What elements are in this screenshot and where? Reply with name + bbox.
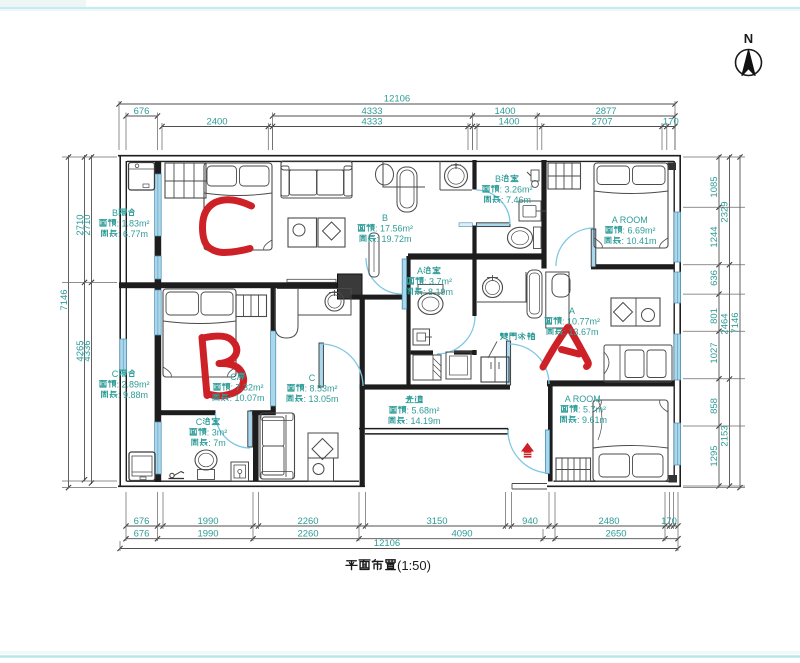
svg-text:: 8.53m²: : 8.53m²	[304, 384, 337, 394]
svg-text:858: 858	[709, 398, 720, 414]
svg-text:676: 676	[134, 516, 150, 527]
svg-text:B: B	[112, 208, 118, 218]
svg-text:: 17.56m²: : 17.56m²	[375, 224, 413, 234]
svg-text:2710: 2710	[82, 214, 93, 235]
svg-text:: 5.7m²: : 5.7m²	[578, 405, 606, 415]
svg-text:1085: 1085	[709, 176, 720, 197]
svg-text:: 10.41m: : 10.41m	[621, 236, 656, 246]
svg-text:4333: 4333	[361, 116, 382, 127]
svg-text:: 9.88m: : 9.88m	[118, 390, 148, 400]
svg-text:: 2.89m²: : 2.89m²	[116, 380, 149, 390]
svg-text:: 10.77m²: : 10.77m²	[562, 317, 600, 327]
svg-text:A ROOM: A ROOM	[565, 394, 601, 404]
svg-text:B: B	[382, 213, 388, 223]
svg-text:12106: 12106	[374, 538, 400, 549]
svg-text:676: 676	[134, 529, 150, 540]
svg-text:: 3m²: : 3m²	[207, 428, 228, 438]
svg-text:170: 170	[663, 117, 679, 128]
svg-text:A ROOM: A ROOM	[612, 215, 648, 225]
svg-text:C: C	[112, 369, 119, 379]
svg-text:170: 170	[661, 516, 677, 527]
svg-text:: 3.7m²: : 3.7m²	[424, 277, 452, 287]
svg-text:: 7m: : 7m	[208, 438, 226, 448]
svg-text:1244: 1244	[709, 226, 720, 247]
svg-text:7146: 7146	[730, 312, 741, 333]
svg-text:2707: 2707	[591, 116, 612, 127]
svg-text:1990: 1990	[197, 516, 218, 527]
svg-text:2260: 2260	[297, 529, 318, 540]
svg-text:676: 676	[134, 106, 150, 117]
svg-text:N: N	[744, 31, 753, 46]
svg-text:: 13.67m: : 13.67m	[563, 327, 598, 337]
svg-text:940: 940	[522, 516, 538, 527]
svg-text:A: A	[417, 266, 423, 276]
svg-text:801: 801	[709, 308, 720, 324]
svg-text:C: C	[230, 372, 237, 382]
svg-text:: 9.61m: : 9.61m	[577, 415, 607, 425]
svg-text:1295: 1295	[709, 445, 720, 466]
svg-text:: 3.26m²: : 3.26m²	[499, 185, 532, 195]
svg-text:: 7.32m²: : 7.32m²	[230, 383, 263, 393]
svg-text:C: C	[309, 373, 316, 383]
svg-text:C: C	[196, 417, 203, 427]
svg-text:2650: 2650	[605, 529, 626, 540]
svg-text:: 14.19m: : 14.19m	[405, 416, 440, 426]
svg-text:7146: 7146	[59, 289, 70, 310]
svg-text:(1:50): (1:50)	[397, 558, 431, 573]
svg-text:4090: 4090	[451, 529, 472, 540]
svg-text:: 7.46m: : 7.46m	[501, 195, 531, 205]
svg-text:B: B	[495, 174, 501, 184]
svg-text:4336: 4336	[82, 340, 93, 361]
svg-text:2153: 2153	[720, 425, 731, 446]
svg-text:636: 636	[709, 270, 720, 286]
svg-text:: 6.69m²: : 6.69m²	[622, 226, 655, 236]
svg-text:2400: 2400	[206, 116, 227, 127]
svg-text:2464: 2464	[720, 313, 731, 334]
svg-text:: 1.83m²: : 1.83m²	[116, 219, 149, 229]
svg-text:: 10.07m: : 10.07m	[229, 393, 264, 403]
svg-text:A: A	[569, 306, 575, 316]
svg-text:: 8.19m: : 8.19m	[423, 287, 453, 297]
svg-text:1400: 1400	[498, 116, 519, 127]
svg-text:: 13.05m: : 13.05m	[303, 394, 338, 404]
svg-text:12106: 12106	[384, 94, 410, 105]
svg-text:1027: 1027	[709, 342, 720, 363]
svg-text:2480: 2480	[598, 516, 619, 527]
svg-text:: 5.68m²: : 5.68m²	[406, 406, 439, 416]
svg-text:: 19.72m: : 19.72m	[376, 234, 411, 244]
svg-text:1990: 1990	[197, 529, 218, 540]
svg-text:2329: 2329	[720, 201, 731, 222]
svg-text:3150: 3150	[426, 516, 447, 527]
svg-text:2260: 2260	[297, 516, 318, 527]
svg-text:: 6.77m: : 6.77m	[118, 229, 148, 239]
